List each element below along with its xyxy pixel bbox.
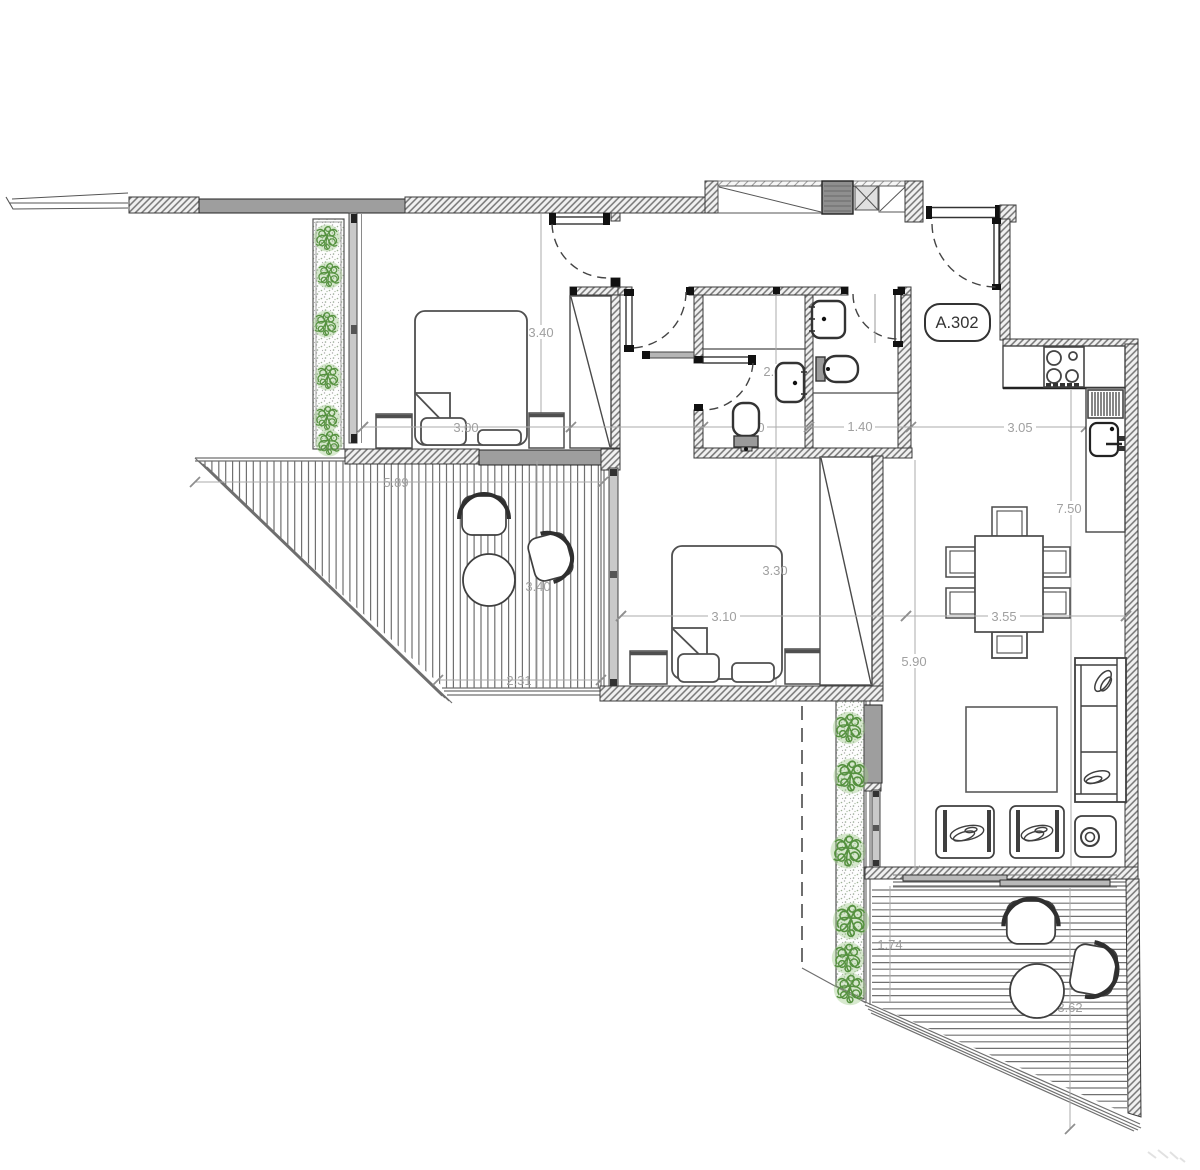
svg-text:5.90: 5.90 bbox=[901, 654, 926, 669]
svg-text:1.40: 1.40 bbox=[847, 419, 872, 434]
svg-text:3.40: 3.40 bbox=[528, 325, 553, 340]
svg-text:3.10: 3.10 bbox=[711, 609, 736, 624]
svg-text:3.05: 3.05 bbox=[1007, 420, 1032, 435]
svg-text:3.55: 3.55 bbox=[991, 609, 1016, 624]
svg-text:3.30: 3.30 bbox=[762, 563, 787, 578]
svg-text:7.50: 7.50 bbox=[1056, 501, 1081, 516]
svg-text:A.302: A.302 bbox=[935, 314, 978, 332]
svg-text:5.89: 5.89 bbox=[383, 475, 408, 490]
svg-text:2.31: 2.31 bbox=[506, 673, 531, 688]
svg-text:1.74: 1.74 bbox=[877, 937, 902, 952]
svg-text:3.00: 3.00 bbox=[453, 420, 478, 435]
